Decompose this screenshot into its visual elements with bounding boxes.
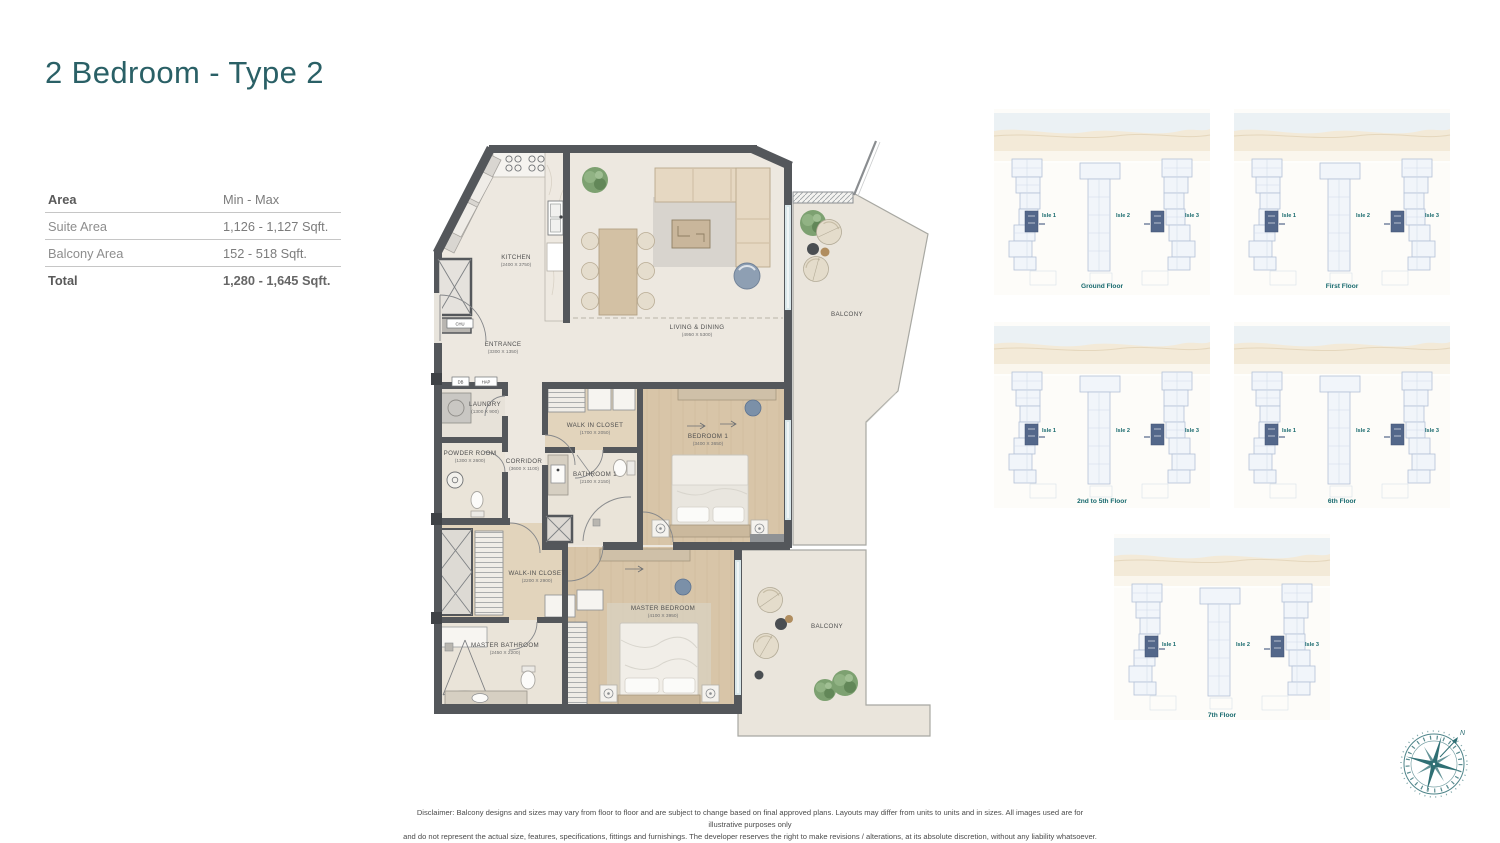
tag-hap: HAP [482,380,491,385]
isle-3-label: Isle 3 [1185,428,1199,434]
isle-2-label: Isle 2 [1116,428,1130,434]
isle-2-label: Isle 2 [1356,213,1370,219]
keyplan-7th-floor: Isle 1 Isle 2 Isle 3 7th Floor [1112,532,1332,722]
room-dims: (4950 X 5300) [682,332,713,338]
isle-2-label: Isle 2 [1356,428,1370,434]
room-label: BALCONY [811,623,843,630]
room-dims: (4100 X 3950) [648,613,679,619]
room-dims: (3300 X 1350) [488,349,519,355]
room-label: BALCONY [831,311,863,318]
keyplan-caption: 6th Floor [1328,498,1357,505]
room-label: POWDER ROOM [444,450,497,457]
north-label: N [1460,730,1466,737]
room-dims: (2200 X 2900) [522,578,553,584]
room-label: WALK-IN CLOSET [509,570,566,577]
keyplan-ground-floor: Isle 1 Isle 2 Isle 3 Ground Floor [992,107,1212,297]
area-header-label: Area [48,192,223,207]
room-dims: (3400 X 3650) [693,441,724,447]
suite-area-label: Suite Area [48,219,223,234]
keyplan-caption: First Floor [1326,283,1359,290]
total-area-value: 1,280 - 1,645 Sqft. [223,273,338,288]
isle-2-label: Isle 2 [1116,213,1130,219]
area-row-suite: Suite Area 1,126 - 1,127 Sqft. [45,213,341,240]
area-header-value: Min - Max [223,192,338,207]
tag-chu: CHU [455,322,464,327]
area-table-header: Area Min - Max [45,186,341,213]
room-label: BEDROOM 1 [688,433,728,440]
isle-1-label: Isle 1 [1042,428,1056,434]
keyplan-caption: 7th Floor [1208,712,1237,719]
room-label: LIVING & DINING [670,324,725,331]
area-table: Area Min - Max Suite Area 1,126 - 1,127 … [45,186,341,293]
balcony-area-value: 152 - 518 Sqft. [223,246,338,261]
room-label: CORRIDOR [506,458,543,465]
area-row-balcony: Balcony Area 152 - 518 Sqft. [45,240,341,267]
keyplan-caption: 2nd to 5th Floor [1077,498,1127,505]
isle-3-label: Isle 3 [1425,213,1439,219]
isle-3-label: Isle 3 [1185,213,1199,219]
room-label: MASTER BEDROOM [631,605,695,612]
room-label: WALK IN CLOSET [567,422,624,429]
isle-1-label: Isle 1 [1282,428,1296,434]
room-label: KITCHEN [501,254,531,261]
room-label: LAUNDRY [469,401,501,408]
keyplan-6th-floor: Isle 1 Isle 2 Isle 3 6th Floor [1232,320,1452,510]
room-label: ENTRANCE [485,341,522,348]
disclaimer: Disclaimer: Balcony designs and sizes ma… [400,807,1100,842]
isle-1-label: Isle 1 [1162,642,1176,648]
room-dims: (3600 X 1100) [509,466,539,472]
room-label: BATHROOM 1 [573,471,617,478]
total-area-label: Total [48,273,223,288]
suite-area-value: 1,126 - 1,127 Sqft. [223,219,338,234]
keyplan-caption: Ground Floor [1081,283,1124,290]
area-row-total: Total 1,280 - 1,645 Sqft. [45,267,341,293]
room-dims: (1700 X 2050) [580,430,611,436]
room-dims: (2450 X 2200) [490,650,521,656]
room-dims: (2400 X 3750) [501,262,532,268]
isle-3-label: Isle 3 [1425,428,1439,434]
isle-3-label: Isle 3 [1305,642,1319,648]
room-dims: (1300 X 900) [471,409,499,415]
isle-1-label: Isle 1 [1282,213,1296,219]
disclaimer-line-2: and do not represent the actual size, fe… [400,831,1100,843]
room-label: MASTER BATHROOM [471,642,539,649]
isle-2-label: Isle 2 [1236,642,1250,648]
page-title: 2 Bedroom - Type 2 [45,55,324,91]
room-dims: (2100 X 2150) [580,479,611,485]
isle-1-label: Isle 1 [1042,213,1056,219]
floorplan-drawing: CHU DB HAP KITCHEN(2400 X 3750)ENTRANCE(… [425,135,945,775]
keyplan-first-floor: Isle 1 Isle 2 Isle 3 First Floor [1232,107,1452,297]
balcony-area-label: Balcony Area [48,246,223,261]
room-dims: (1300 X 2600) [455,458,486,464]
keyplan-2nd-5th-floor: Isle 1 Isle 2 Isle 3 2nd to 5th Floor [992,320,1212,510]
tag-db: DB [458,380,464,385]
disclaimer-line-1: Disclaimer: Balcony designs and sizes ma… [400,807,1100,831]
compass-icon: N [1394,722,1474,802]
